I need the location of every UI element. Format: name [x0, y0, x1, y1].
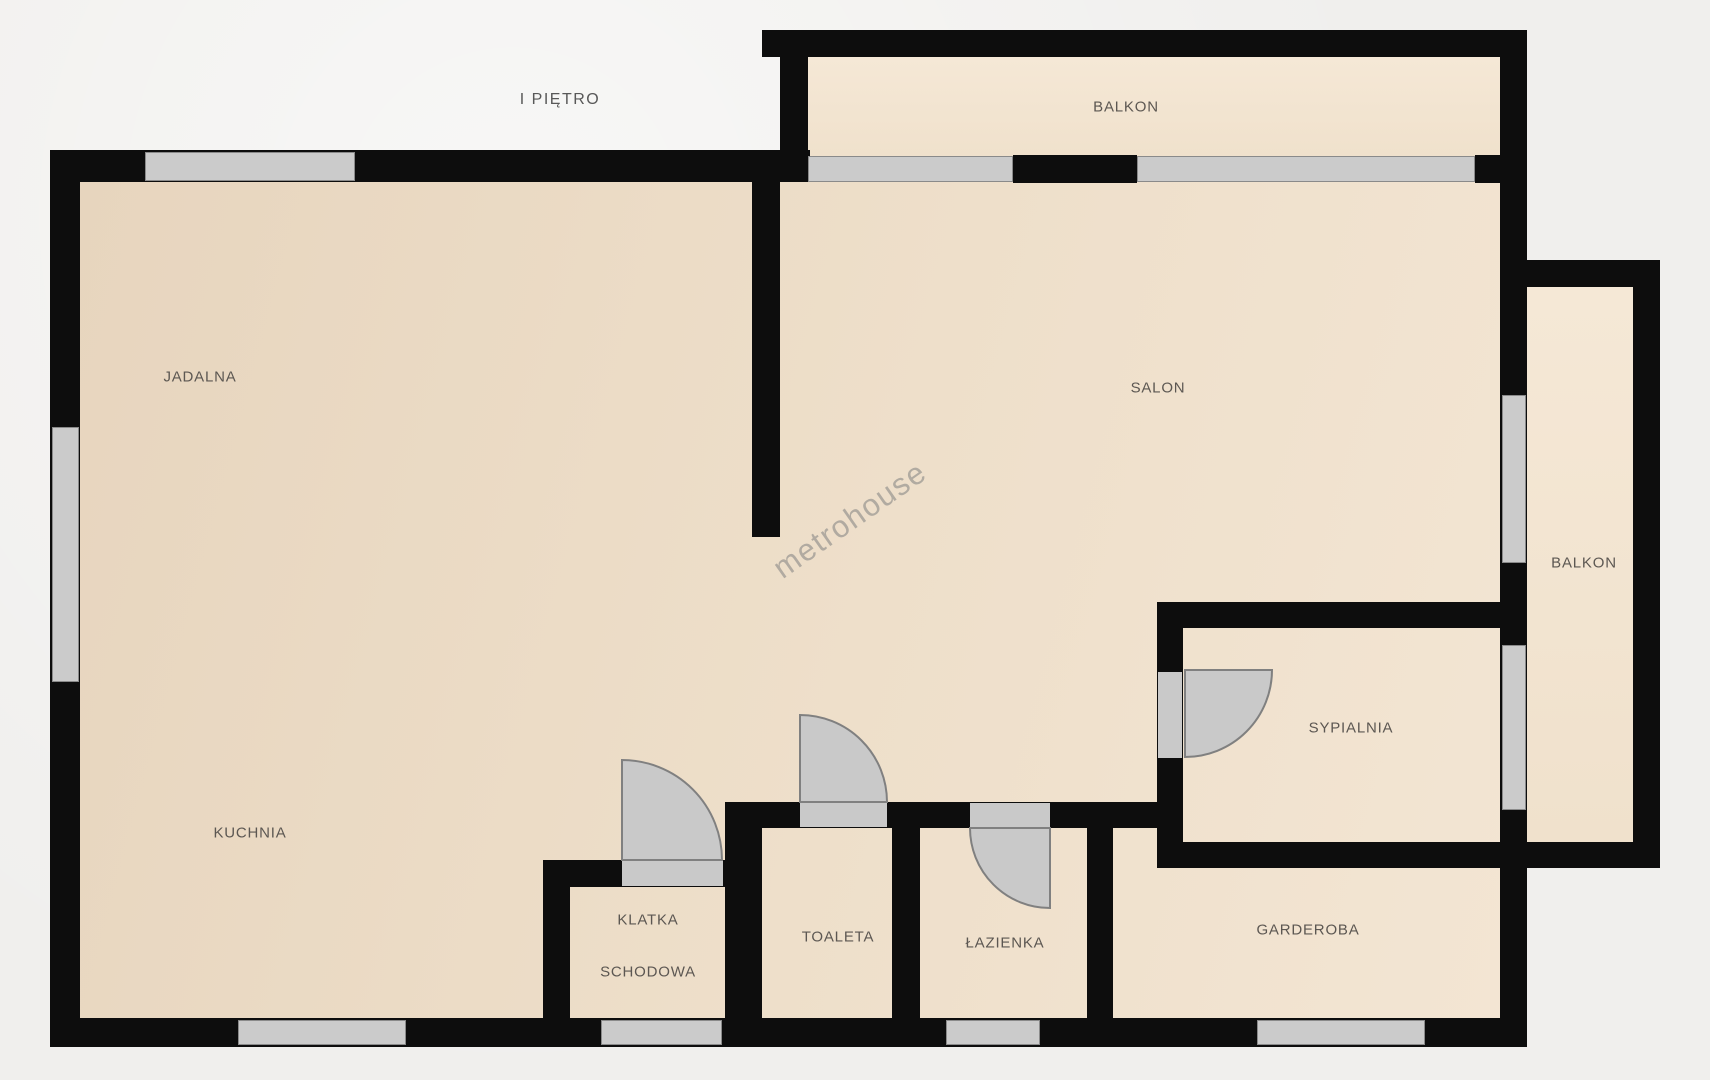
- floor-title: I PIĘTRO: [520, 91, 600, 109]
- window-salon-right: [1502, 395, 1526, 563]
- window-under-balcony-a: [808, 156, 1013, 182]
- window-lazienka-bottom: [946, 1020, 1040, 1045]
- room-label-klatka-line1: KLATKA: [617, 912, 678, 929]
- wall-hall-south: [725, 802, 1183, 828]
- wall-klatka-toaleta: [725, 802, 762, 1018]
- window-klatka-bottom: [601, 1020, 722, 1045]
- room-label-balkon-top: BALKON: [1093, 99, 1159, 116]
- room-label-salon: SALON: [1131, 380, 1186, 397]
- door-opening-lazienka: [970, 803, 1050, 827]
- window-jadalna-left: [52, 427, 79, 682]
- wall-balcony-right-bottom: [1527, 842, 1660, 868]
- floor-main-unit: [80, 182, 1500, 1018]
- wall-jadalna-salon-divider: [752, 182, 780, 537]
- wall-sypialnia-top: [1157, 602, 1500, 628]
- room-label-toaleta: TOALETA: [802, 929, 875, 946]
- room-label-klatka-line2: SCHODOWA: [600, 964, 696, 981]
- door-opening-klatka: [622, 861, 723, 886]
- wall-under-balcony-end: [1475, 155, 1500, 183]
- wall-balcony-right-right: [1633, 260, 1660, 867]
- door-opening-sypialnia: [1158, 672, 1182, 758]
- window-jadalna-top: [145, 152, 355, 181]
- wall-toaleta-lazienka: [892, 802, 920, 1018]
- room-label-kuchnia: KUCHNIA: [213, 825, 286, 842]
- room-label-garderoba: GARDEROBA: [1256, 922, 1359, 939]
- floor-plan: I PIĘTRO BALKON JADALNA SALON BALKON SYP…: [0, 0, 1710, 1080]
- wall-klatka-left: [543, 860, 570, 1018]
- window-sypialnia-right: [1502, 645, 1526, 810]
- room-label-jadalna: JADALNA: [163, 369, 236, 386]
- room-label-balkon-right: BALKON: [1551, 555, 1617, 572]
- wall-lazienka-garderoba: [1087, 802, 1113, 1018]
- door-opening-toaleta: [800, 803, 887, 827]
- room-label-sypialnia: SYPIALNIA: [1309, 720, 1394, 737]
- room-label-lazienka: ŁAZIENKA: [966, 935, 1045, 952]
- wall-balcony-top-left: [780, 30, 808, 156]
- wall-under-balcony-segment: [1013, 155, 1137, 183]
- window-kuchnia-bottom: [238, 1020, 406, 1045]
- wall-balcony-top-top: [762, 30, 1527, 57]
- window-garderoba-bottom: [1257, 1020, 1425, 1045]
- wall-sypialnia-bottom: [1157, 842, 1527, 868]
- window-under-balcony-b: [1137, 156, 1475, 182]
